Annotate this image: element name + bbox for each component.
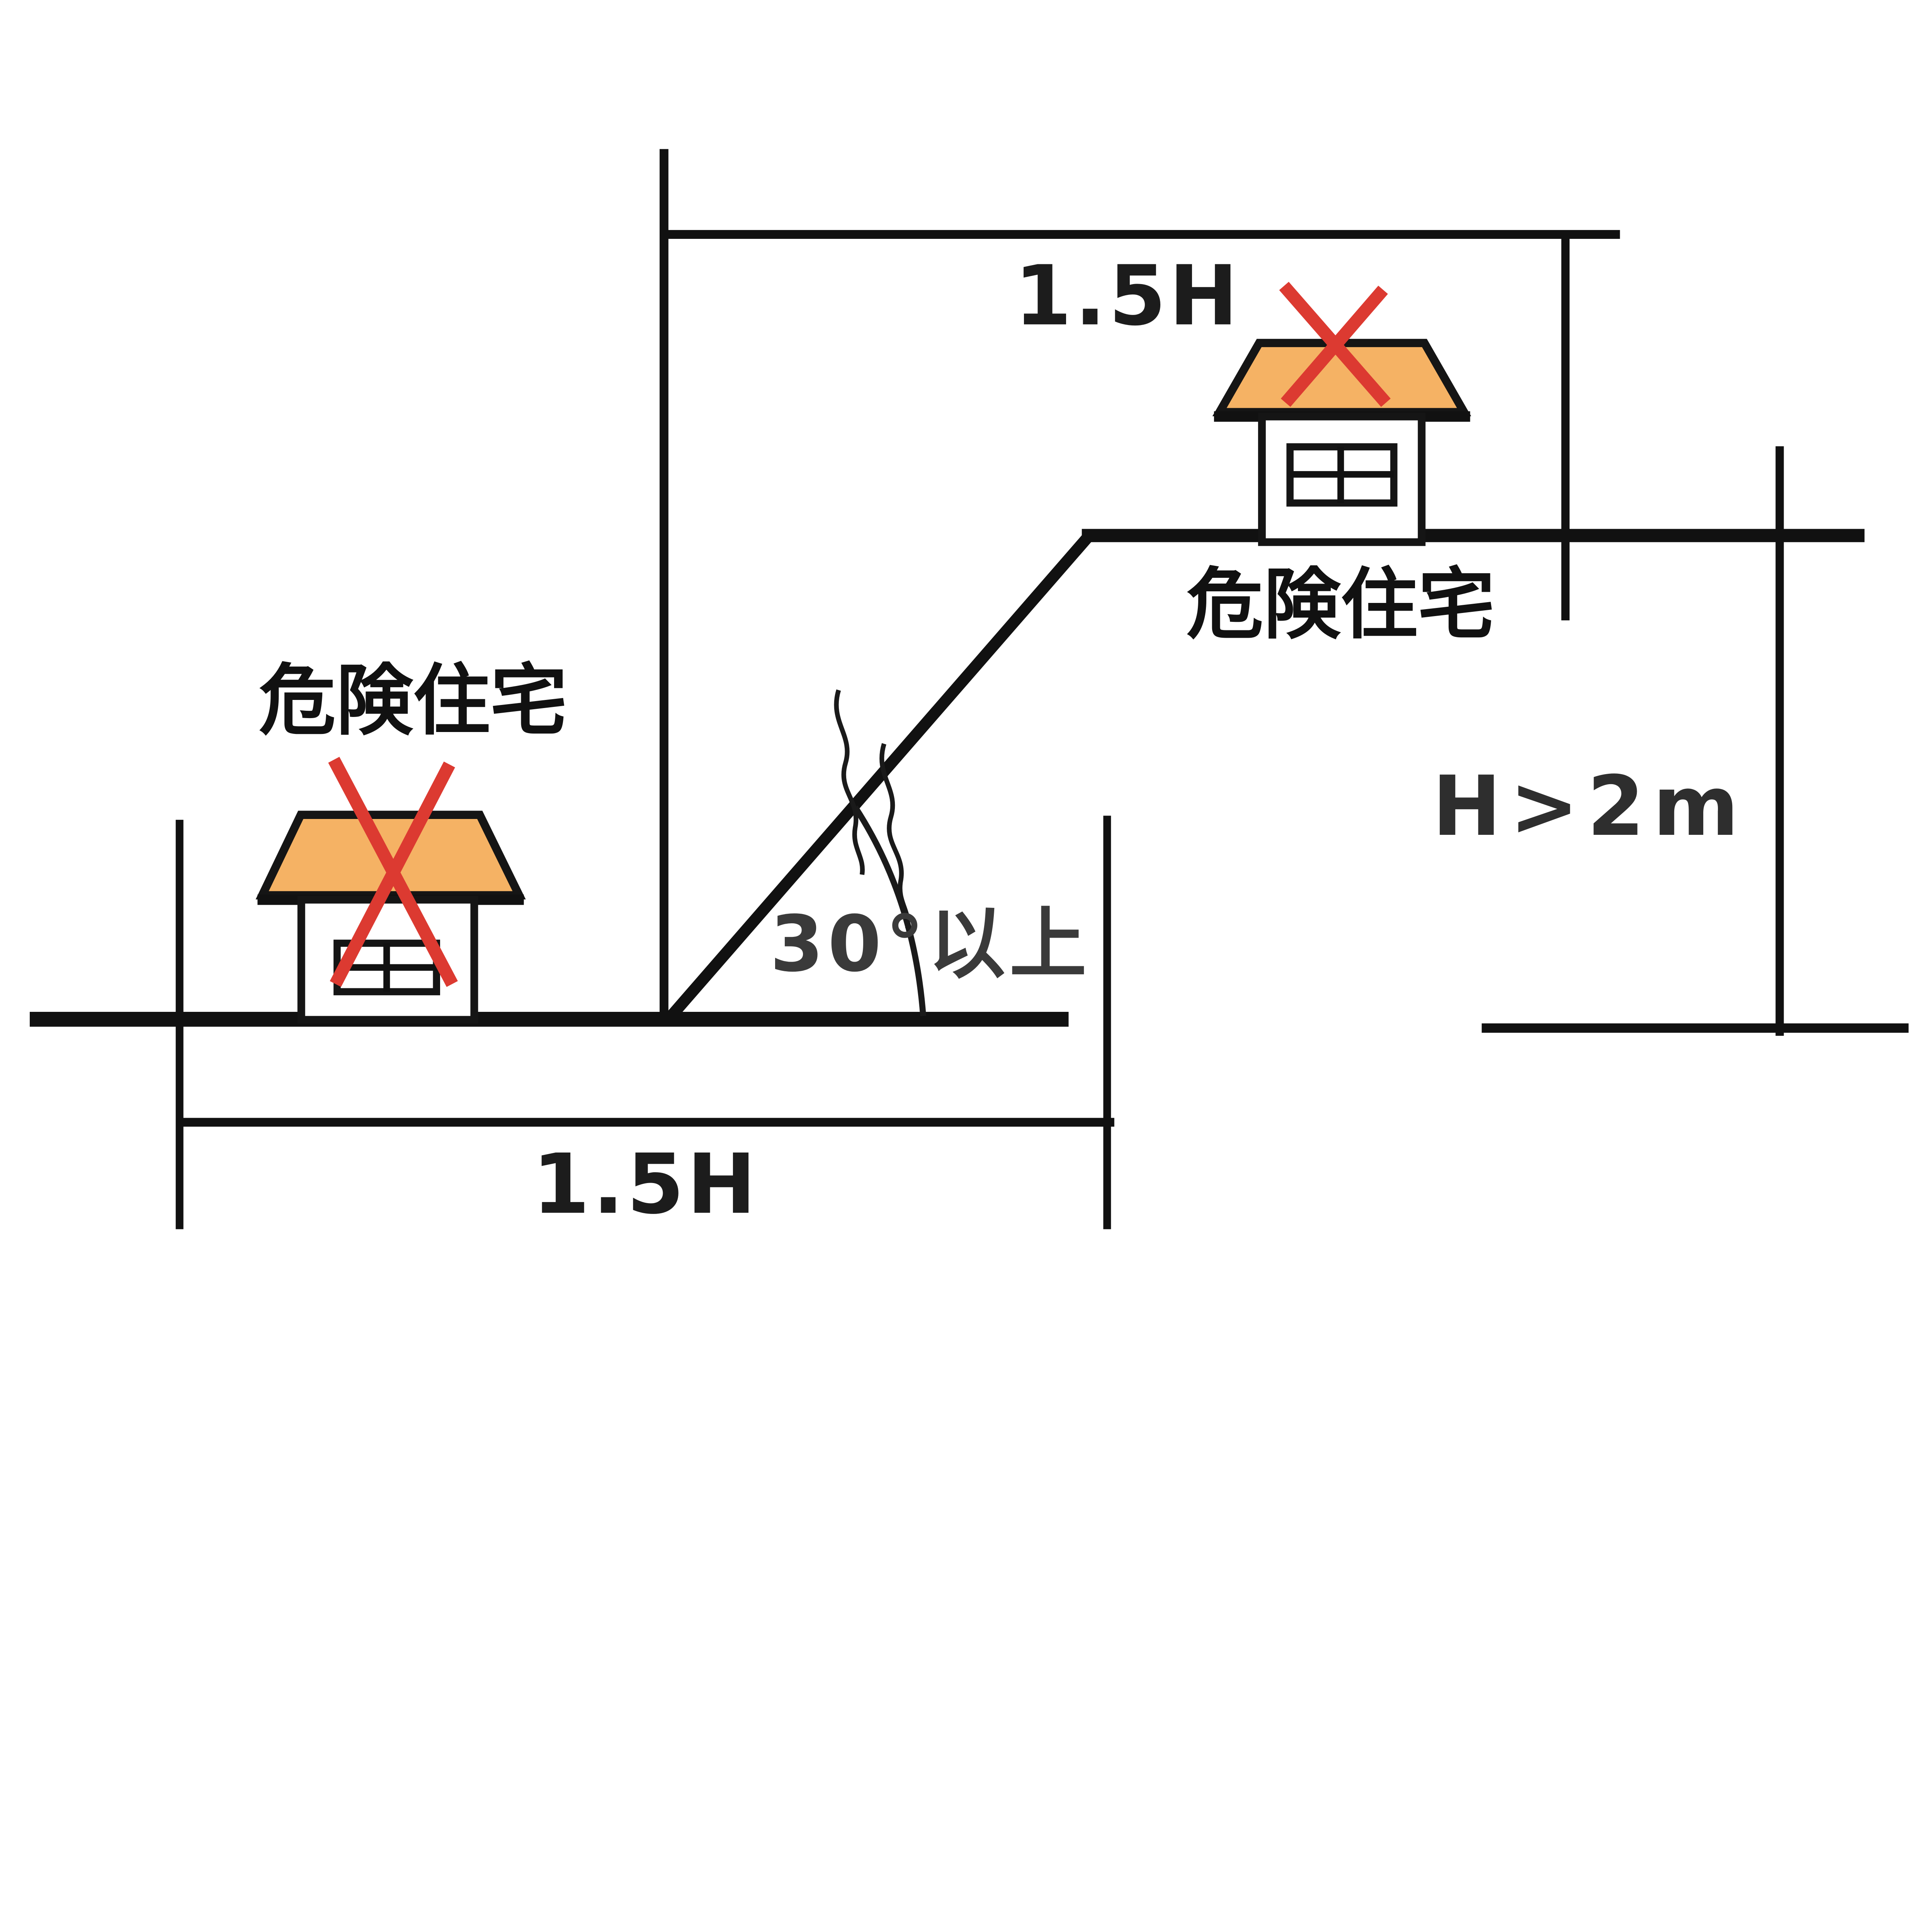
slope-hazard-diagram: 1.5H 危険住宅 危険住宅 30°以上 H>2m 1.5H: [0, 0, 1932, 1366]
upper-house-label: 危険住宅: [1187, 560, 1495, 650]
bottom-dimension-label: 1.5H: [532, 1137, 759, 1233]
lower-house-icon: [257, 760, 524, 1020]
height-condition-label: H>2m: [1432, 759, 1747, 855]
slope-break-mark-1: [836, 690, 862, 875]
top-dimension-label: 1.5H: [1014, 248, 1241, 344]
upper-house-icon: [1214, 286, 1470, 542]
lower-house-label: 危険住宅: [259, 656, 567, 746]
diagram-labels: 1.5H 危険住宅 危険住宅 30°以上 H>2m 1.5H: [259, 248, 1747, 1233]
diagram-canvas: 1.5H 危険住宅 危険住宅 30°以上 H>2m 1.5H: [0, 0, 1932, 1366]
angle-condition-label: 30°以上: [770, 899, 1091, 989]
